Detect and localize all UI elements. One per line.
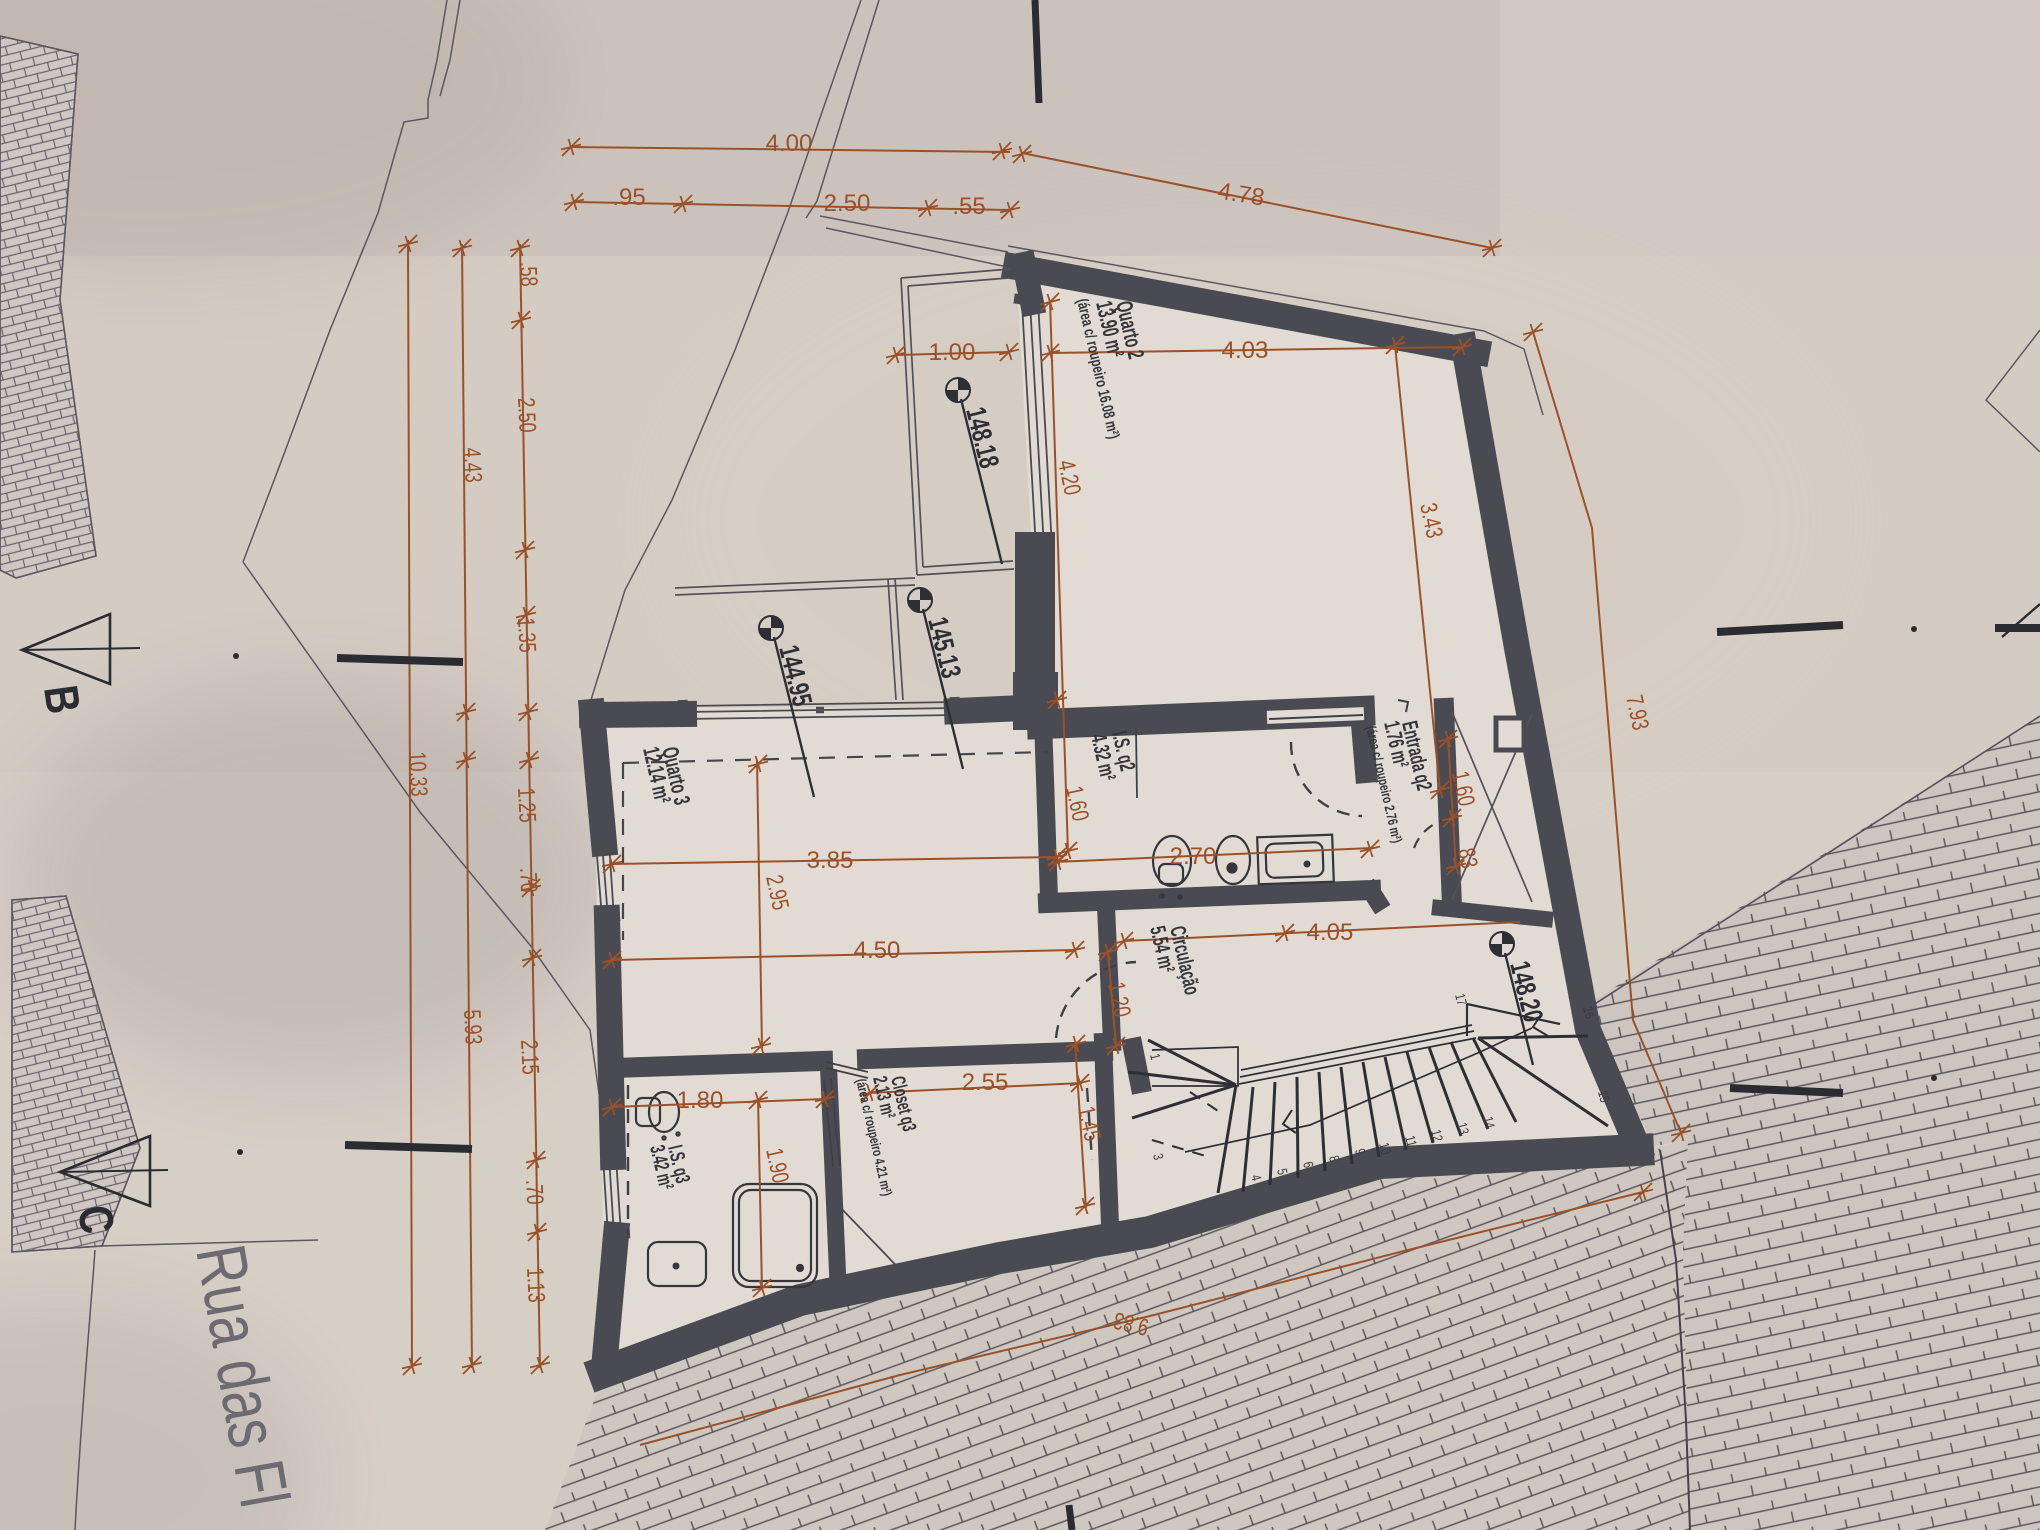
svg-text:1.13: 1.13 xyxy=(521,1267,549,1303)
svg-text:5.93: 5.93 xyxy=(458,1009,486,1045)
svg-text:1.80: 1.80 xyxy=(677,1087,724,1114)
svg-text:1.35: 1.35 xyxy=(512,617,540,653)
svg-text:4.50: 4.50 xyxy=(854,937,901,964)
svg-text:4.03: 4.03 xyxy=(1222,337,1269,364)
svg-text:10.33: 10.33 xyxy=(403,751,431,797)
svg-text:2.50: 2.50 xyxy=(824,190,871,217)
svg-text:4.05: 4.05 xyxy=(1307,919,1354,946)
svg-text:.95: .95 xyxy=(612,184,645,211)
svg-text:.58: .58 xyxy=(514,261,541,287)
svg-text:.70: .70 xyxy=(520,1179,547,1205)
svg-text:4.00: 4.00 xyxy=(766,130,813,157)
svg-text:2.15: 2.15 xyxy=(515,1039,543,1075)
svg-text:3.85: 3.85 xyxy=(807,847,854,874)
svg-text:2.70: 2.70 xyxy=(1170,843,1217,870)
svg-text:4.43: 4.43 xyxy=(458,447,486,483)
svg-text:1.25: 1.25 xyxy=(512,787,540,823)
svg-text:1.00: 1.00 xyxy=(929,339,976,366)
svg-text:.70: .70 xyxy=(514,867,541,893)
svg-text:2.55: 2.55 xyxy=(962,1069,1009,1096)
svg-text:2.50: 2.50 xyxy=(512,397,540,433)
svg-text:.55: .55 xyxy=(952,193,985,220)
